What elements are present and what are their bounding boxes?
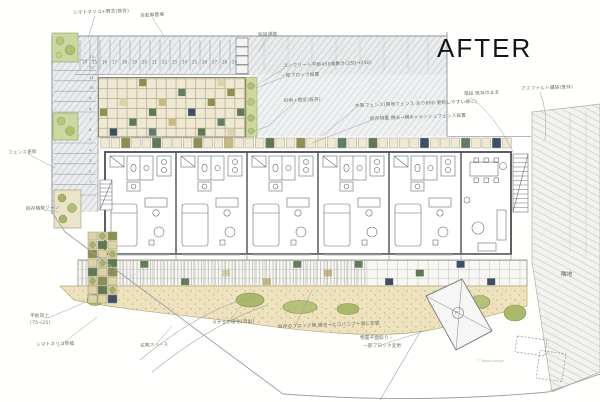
stall-number: 13 bbox=[89, 54, 94, 59]
stall-number: 23 bbox=[172, 60, 178, 65]
bike-rack bbox=[236, 38, 248, 74]
planter-tile bbox=[286, 138, 295, 148]
planter-accent-tile bbox=[461, 138, 470, 148]
accent-tile bbox=[487, 278, 495, 285]
accent-tile bbox=[218, 119, 225, 126]
garden-cell bbox=[108, 277, 117, 285]
planter-tile bbox=[163, 138, 172, 148]
stall-number: 21 bbox=[152, 60, 158, 65]
stair-east bbox=[513, 154, 528, 212]
garden-cell bbox=[98, 295, 107, 303]
planter-tile bbox=[235, 138, 244, 148]
stall-number: 24 bbox=[182, 60, 188, 65]
planter-tile bbox=[482, 138, 491, 148]
accent-tile bbox=[227, 128, 234, 135]
accent-tile bbox=[129, 119, 136, 126]
accent-tile bbox=[385, 278, 393, 285]
garden-plant bbox=[100, 233, 106, 239]
garden-cell bbox=[88, 268, 97, 276]
planter-tile-row bbox=[101, 138, 511, 148]
accent-tile bbox=[120, 99, 127, 106]
garden-cell bbox=[88, 259, 97, 267]
accent-tile bbox=[416, 270, 424, 277]
planter-accent-tile bbox=[121, 138, 130, 148]
accent-tile bbox=[457, 261, 465, 268]
planter-accent-tile bbox=[152, 138, 161, 148]
stall-number: 18 bbox=[122, 60, 128, 65]
courtyard-paving bbox=[99, 78, 258, 138]
garden-cell bbox=[98, 241, 107, 249]
stall-number: 11 bbox=[89, 75, 94, 80]
planter-tile bbox=[358, 138, 367, 148]
stall-number: 25 bbox=[192, 60, 198, 65]
annotation-10: フェンス更新 bbox=[8, 149, 37, 156]
planter-tile bbox=[472, 138, 481, 148]
after-title: AFTER bbox=[437, 33, 532, 64]
annotation-17: 物置平面取り・ bbox=[360, 335, 394, 341]
planter-tile bbox=[307, 138, 316, 148]
annotation-20: 隣地 bbox=[561, 270, 573, 278]
annotation-13: (75→25) bbox=[30, 321, 51, 326]
garden-cell bbox=[108, 241, 117, 249]
planter-tile bbox=[379, 138, 388, 148]
accent-tile bbox=[227, 89, 234, 96]
accent-tile bbox=[208, 99, 215, 106]
stall-number: 20 bbox=[142, 60, 148, 65]
planter-tile bbox=[389, 138, 398, 148]
accent-tile bbox=[100, 109, 107, 116]
accent-tile bbox=[110, 128, 117, 135]
planter-tile bbox=[503, 138, 512, 148]
accent-tile bbox=[169, 119, 176, 126]
stall-number: 26 bbox=[202, 60, 208, 65]
planter-tile bbox=[173, 138, 182, 148]
stall-number: 17 bbox=[112, 60, 118, 65]
apartment-building bbox=[100, 152, 528, 261]
planter-tile bbox=[142, 138, 151, 148]
planter-tile bbox=[204, 138, 213, 148]
garden-cell bbox=[108, 232, 117, 240]
site-plan-sketch: 1415161718192021222324252627282913121110… bbox=[0, 0, 600, 402]
accent-tile bbox=[188, 109, 195, 116]
planter-tile bbox=[214, 138, 223, 148]
garden-cell bbox=[108, 295, 117, 303]
stair-west bbox=[100, 180, 112, 210]
accent-tile bbox=[149, 128, 156, 135]
stall-number: 12 bbox=[89, 64, 94, 69]
annotation-1: 自転車置場 bbox=[140, 12, 164, 19]
stall-number: 22 bbox=[162, 60, 168, 65]
garden-plant bbox=[110, 287, 116, 293]
planter-tile bbox=[255, 138, 264, 148]
planter-accent-tile bbox=[224, 138, 233, 148]
pad-letter: P bbox=[455, 310, 458, 315]
planter-accent-tile bbox=[369, 138, 378, 148]
copyright-note: © Tanaka design bbox=[477, 359, 504, 363]
garden-plant bbox=[90, 278, 96, 284]
planter-tile bbox=[276, 138, 285, 148]
planter-tile bbox=[245, 138, 254, 148]
garden-cell bbox=[98, 268, 107, 276]
planting-patches bbox=[52, 33, 81, 228]
stall-number: 19 bbox=[132, 60, 138, 65]
stall-number: 28 bbox=[222, 60, 228, 65]
planter-tile bbox=[101, 138, 110, 148]
accent-tile bbox=[178, 89, 185, 96]
terrace-fence bbox=[80, 261, 366, 285]
garden-plant bbox=[90, 242, 96, 248]
planter-accent-tile bbox=[492, 138, 501, 148]
planter-tile bbox=[441, 138, 450, 148]
garden-cell bbox=[98, 250, 107, 258]
annotation-5: 砂利+野芝(既存) bbox=[284, 97, 321, 104]
planter-tile bbox=[183, 138, 192, 148]
garden-cell bbox=[108, 259, 117, 267]
stall-number: 27 bbox=[212, 60, 218, 65]
stall-number: 29 bbox=[232, 60, 238, 65]
garden-cell bbox=[88, 232, 97, 240]
planter-tile bbox=[430, 138, 439, 148]
planter-tile bbox=[410, 138, 419, 148]
garden-cell bbox=[98, 286, 107, 294]
garden-plant bbox=[110, 251, 116, 257]
accent-tile bbox=[237, 109, 244, 116]
accent-tile bbox=[198, 128, 205, 135]
accent-tile bbox=[139, 79, 146, 86]
accent-tile bbox=[149, 109, 156, 116]
garden-cell bbox=[88, 286, 97, 294]
planter-accent-tile bbox=[420, 138, 429, 148]
accent-tile bbox=[159, 99, 166, 106]
planter-accent-tile bbox=[297, 138, 306, 148]
planter-tile bbox=[348, 138, 357, 148]
planter-tile bbox=[451, 138, 460, 148]
stall-number: 10 bbox=[89, 85, 94, 90]
annotation-12: 平板同上 bbox=[30, 313, 49, 319]
planter-tile bbox=[132, 138, 141, 148]
planter-accent-tile bbox=[194, 138, 203, 148]
planter-accent-tile bbox=[338, 138, 347, 148]
planter-accent-tile bbox=[266, 138, 275, 148]
planter-tile bbox=[111, 138, 120, 148]
annotation-8: 階段 既存のまま bbox=[464, 90, 499, 97]
stall-number: 14 bbox=[82, 60, 88, 65]
stall-number: 16 bbox=[102, 60, 108, 65]
garden-cell bbox=[88, 295, 97, 303]
neighbor-lot bbox=[515, 104, 600, 392]
planter-tile bbox=[327, 138, 336, 148]
annotation-11: 既存植栽ゾーン bbox=[26, 205, 60, 212]
accent-tile bbox=[218, 79, 225, 86]
garden-cell bbox=[98, 277, 107, 285]
annotation-2: 仮設通路 bbox=[258, 31, 277, 38]
planter-tile bbox=[400, 138, 409, 148]
garden-cell bbox=[88, 250, 97, 258]
annotation-18: 一部ブロック変更 bbox=[363, 343, 401, 349]
